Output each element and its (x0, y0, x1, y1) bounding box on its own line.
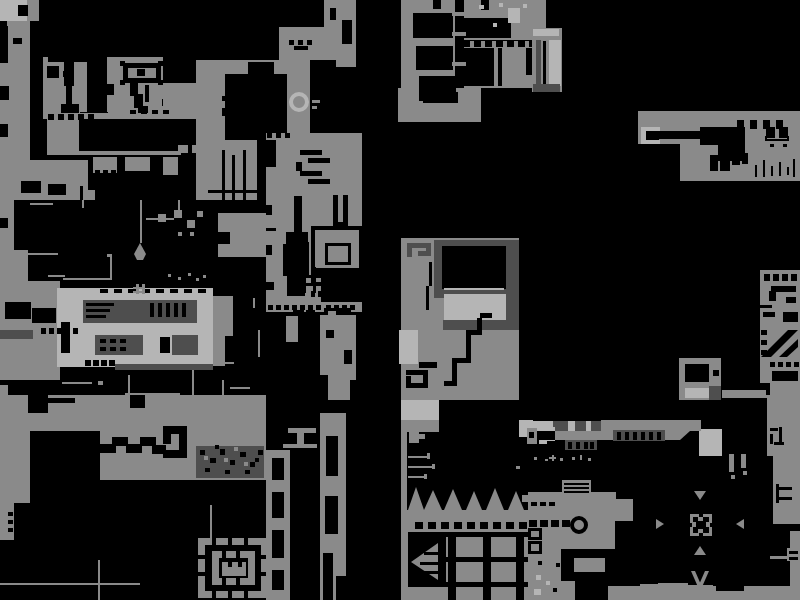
game-map-screen (0, 0, 800, 600)
world-map-canvas[interactable] (0, 0, 800, 600)
